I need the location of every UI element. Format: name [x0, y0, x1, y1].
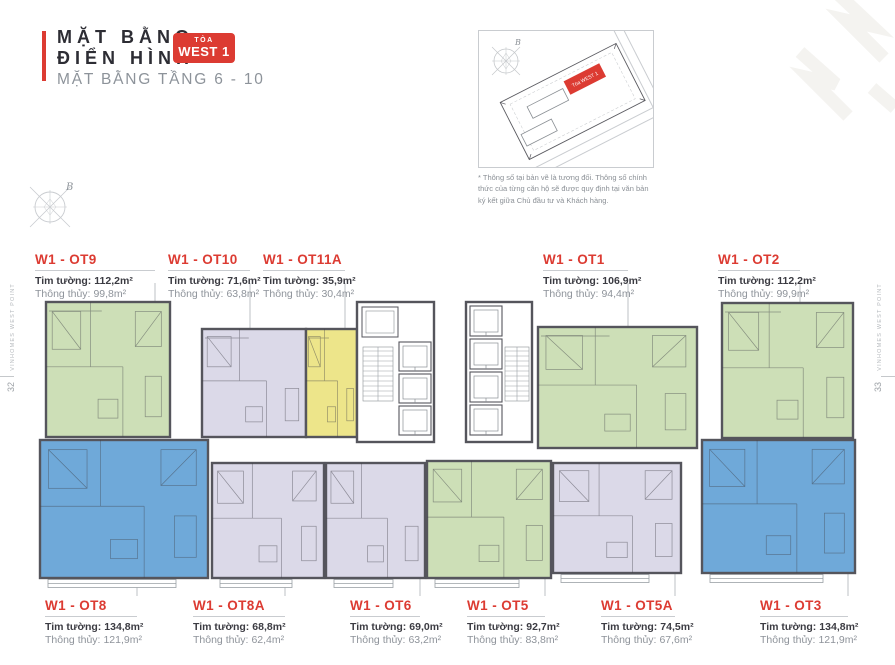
label-underline [718, 270, 800, 271]
unit-shape-w1-ot3 [702, 440, 855, 583]
thong-thuy-row: Thông thủy:94,4m² [543, 288, 683, 301]
thong-thuy-row: Thông thủy:99,8m² [35, 288, 175, 301]
balcony [435, 580, 519, 588]
unit-interior-lines [40, 440, 196, 578]
unit-name: W1 - OT5A [601, 598, 741, 613]
unit-name: W1 - OT2 [718, 252, 858, 267]
unit-label-w1-ot5a: W1 - OT5A Tim tường:74,5m² Thông thủy:67… [601, 598, 741, 647]
core-structure [357, 302, 434, 442]
unit-interior-lines [427, 461, 542, 578]
tim-tuong-row: Tim tường:92,7m² [467, 621, 607, 634]
balcony [561, 575, 649, 583]
unit-label-w1-ot8a: W1 - OT8A Tim tường:68,8m² Thông thủy:62… [193, 598, 333, 647]
page-number-right: 33 [873, 382, 883, 392]
label-underline [193, 616, 285, 617]
site-map-plan: Tòa WEST 1 [478, 30, 654, 168]
thong-thuy-row: Thông thủy:99,9m² [718, 288, 858, 301]
label-underline [45, 616, 137, 617]
site-map: B Tòa WEST 1 [478, 30, 654, 168]
tim-tuong-row: Tim tường:74,5m² [601, 621, 741, 634]
label-underline [168, 270, 250, 271]
unit-label-w1-ot11a: W1 - OT11A Tim tường:35,9m² Thông thủy:3… [263, 252, 403, 301]
tim-tuong-row: Tim tường:106,9m² [543, 275, 683, 288]
site-map-compass-label: B [514, 38, 521, 47]
margin-text-right: VINHOMES WEST POINT [877, 283, 883, 371]
tim-tuong-row: Tim tường:112,2m² [35, 275, 175, 288]
unit-shape-w1-ot6 [326, 463, 425, 588]
elevator-shaft [470, 306, 502, 435]
leader-lines [137, 283, 848, 596]
label-underline [601, 616, 675, 617]
unit-interior-lines [212, 463, 316, 578]
balcony [334, 580, 393, 588]
thong-thuy-row: Thông thủy:67,6m² [601, 634, 741, 647]
balcony [220, 580, 292, 588]
decorative-zigzag [0, 0, 895, 665]
tim-tuong-row: Tim tường:134,8m² [45, 621, 185, 634]
unit-name: W1 - OT8A [193, 598, 333, 613]
tower-badge: TÒA WEST 1 [173, 33, 235, 63]
unit-shape-w1-ot8a [212, 463, 324, 588]
thong-thuy-row: Thông thủy:30,4m² [263, 288, 403, 301]
unit-interior-lines [553, 463, 672, 573]
label-underline [35, 270, 155, 271]
unit-shape-w1-ot9 [46, 302, 170, 437]
thong-thuy-row: Thông thủy:83,8m² [467, 634, 607, 647]
unit-interior-lines [306, 329, 353, 437]
thong-thuy-row: Thông thủy:62,4m² [193, 634, 333, 647]
tower-badge-small: TÒA [173, 37, 235, 44]
label-underline [350, 616, 420, 617]
balcony [48, 580, 176, 588]
unit-name: W1 - OT9 [35, 252, 175, 267]
unit-interior-lines [538, 327, 686, 448]
unit-shape-w1-ot5 [427, 461, 551, 588]
unit-interior-lines [702, 440, 844, 573]
margin-text-left: VINHOMES WEST POINT [10, 283, 16, 371]
margin-tick-left [0, 376, 14, 377]
unit-shape-w1-ot8 [40, 440, 208, 588]
disclaimer-text: * Thông số tại bản vẽ là tương đối. Thôn… [478, 172, 658, 206]
unit-interior-lines [722, 303, 844, 438]
thong-thuy-row: Thông thủy:121,9m² [760, 634, 895, 647]
site-map-compass [492, 47, 520, 75]
balcony [710, 575, 823, 583]
unit-label-w1-ot5: W1 - OT5 Tim tường:92,7m² Thông thủy:83,… [467, 598, 607, 647]
label-underline [263, 270, 345, 271]
page-number-left: 32 [6, 382, 16, 392]
label-underline [467, 616, 545, 617]
brochure-page: MẶT BẰNG ĐIỂN HÌNH TÒA WEST 1 MẶT BẰNG T… [0, 0, 895, 665]
core-structure [466, 302, 532, 442]
unit-interior-lines [202, 329, 299, 437]
unit-shape-w1-ot1 [538, 327, 697, 448]
page-subtitle: MẶT BẰNG TẦNG 6 - 10 [57, 71, 265, 89]
unit-name: W1 - OT8 [45, 598, 185, 613]
title-accent-bar [42, 31, 46, 81]
tim-tuong-row: Tim tường:35,9m² [263, 275, 403, 288]
unit-interior-lines [326, 463, 418, 578]
unit-shape-w1-ot11a [306, 329, 357, 437]
label-underline [760, 616, 848, 617]
thong-thuy-row: Thông thủy:121,9m² [45, 634, 185, 647]
unit-shape-w1-ot2 [722, 303, 853, 438]
tim-tuong-row: Tim tường:134,8m² [760, 621, 895, 634]
compass-north-label: B [65, 182, 73, 193]
label-underline [543, 270, 628, 271]
unit-interior-lines [46, 302, 161, 437]
tower-badge-large: WEST 1 [173, 44, 235, 59]
tim-tuong-row: Tim tường:68,8m² [193, 621, 333, 634]
unit-label-w1-ot1: W1 - OT1 Tim tường:106,9m² Thông thủy:94… [543, 252, 683, 301]
unit-label-w1-ot3: W1 - OT3 Tim tường:134,8m² Thông thủy:12… [760, 598, 895, 647]
elevator-shaft [399, 342, 431, 435]
unit-name: W1 - OT5 [467, 598, 607, 613]
unit-shape-w1-ot5a [553, 463, 681, 583]
unit-name: W1 - OT3 [760, 598, 895, 613]
stairs [505, 347, 529, 401]
unit-label-w1-ot8: W1 - OT8 Tim tường:134,8m² Thông thủy:12… [45, 598, 185, 647]
stairs [363, 347, 393, 401]
floor-plan [0, 0, 895, 665]
tim-tuong-row: Tim tường:112,2m² [718, 275, 858, 288]
unit-name: W1 - OT11A [263, 252, 403, 267]
unit-label-w1-ot9: W1 - OT9 Tim tường:112,2m² Thông thủy:99… [35, 252, 175, 301]
unit-label-w1-ot2: W1 - OT2 Tim tường:112,2m² Thông thủy:99… [718, 252, 858, 301]
margin-tick-right [881, 376, 895, 377]
compass-icon: B [22, 176, 80, 234]
unit-name: W1 - OT1 [543, 252, 683, 267]
unit-shape-w1-ot10 [202, 329, 306, 437]
